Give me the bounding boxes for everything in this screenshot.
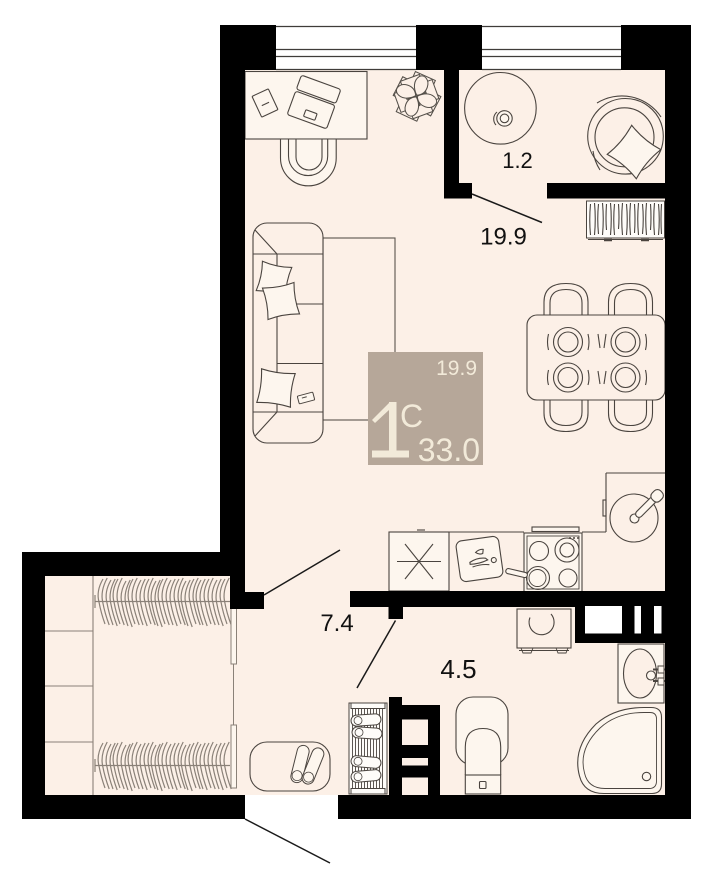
svg-text:33.0: 33.0 xyxy=(418,432,480,468)
svg-text:7.4: 7.4 xyxy=(320,610,353,637)
svg-text:19.9: 19.9 xyxy=(436,357,477,380)
svg-text:1.2: 1.2 xyxy=(502,148,533,173)
svg-text:С: С xyxy=(400,398,423,434)
svg-text:19.9: 19.9 xyxy=(480,224,527,251)
svg-text:4.5: 4.5 xyxy=(440,654,476,684)
